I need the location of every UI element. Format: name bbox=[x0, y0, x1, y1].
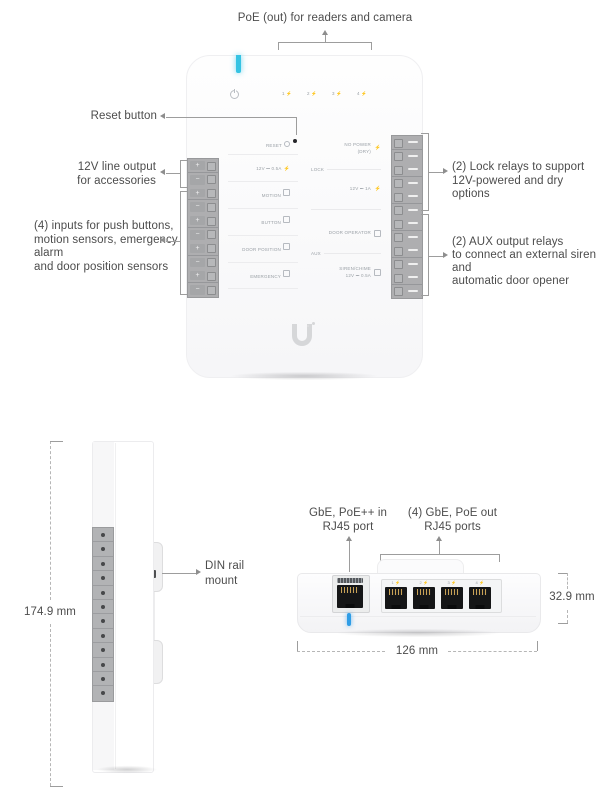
bottom-width-label: 126 mm bbox=[387, 645, 447, 659]
port-label-strip bbox=[337, 578, 363, 583]
poe-in-rj45-port bbox=[337, 585, 363, 608]
poe-out-rj45-port-2 bbox=[413, 587, 435, 609]
poe-out-rj45-port-4 bbox=[469, 587, 491, 609]
port-label-2: 2 ⚡ bbox=[413, 580, 435, 585]
bottom-height-label: 32.9 mm bbox=[541, 591, 603, 605]
poe-out-rj45-port-1 bbox=[385, 587, 407, 609]
width-dimension-line bbox=[297, 651, 385, 652]
callout-poe-in-port: GbE, PoE++ in RJ45 port bbox=[300, 506, 396, 534]
bottom-view: GbE, PoE++ in RJ45 port (4) GbE, PoE out… bbox=[0, 0, 607, 800]
port-label-1: 1 ⚡ bbox=[385, 580, 407, 585]
port-label-4: 4 ⚡ bbox=[469, 580, 491, 585]
poe-out-rj45-port-3 bbox=[441, 587, 463, 609]
product-diagram: 1 ⚡ 2 ⚡ 3 ⚡ 4 ⚡ PoE (out) for readers an… bbox=[0, 0, 607, 800]
bottom-drop-shadow bbox=[301, 627, 535, 639]
callout-poe-out-ports: (4) GbE, PoE out RJ45 ports bbox=[395, 506, 510, 534]
status-led bbox=[347, 613, 351, 626]
depth-dimension-line bbox=[567, 573, 568, 589]
port-label-3: 3 ⚡ bbox=[441, 580, 463, 585]
